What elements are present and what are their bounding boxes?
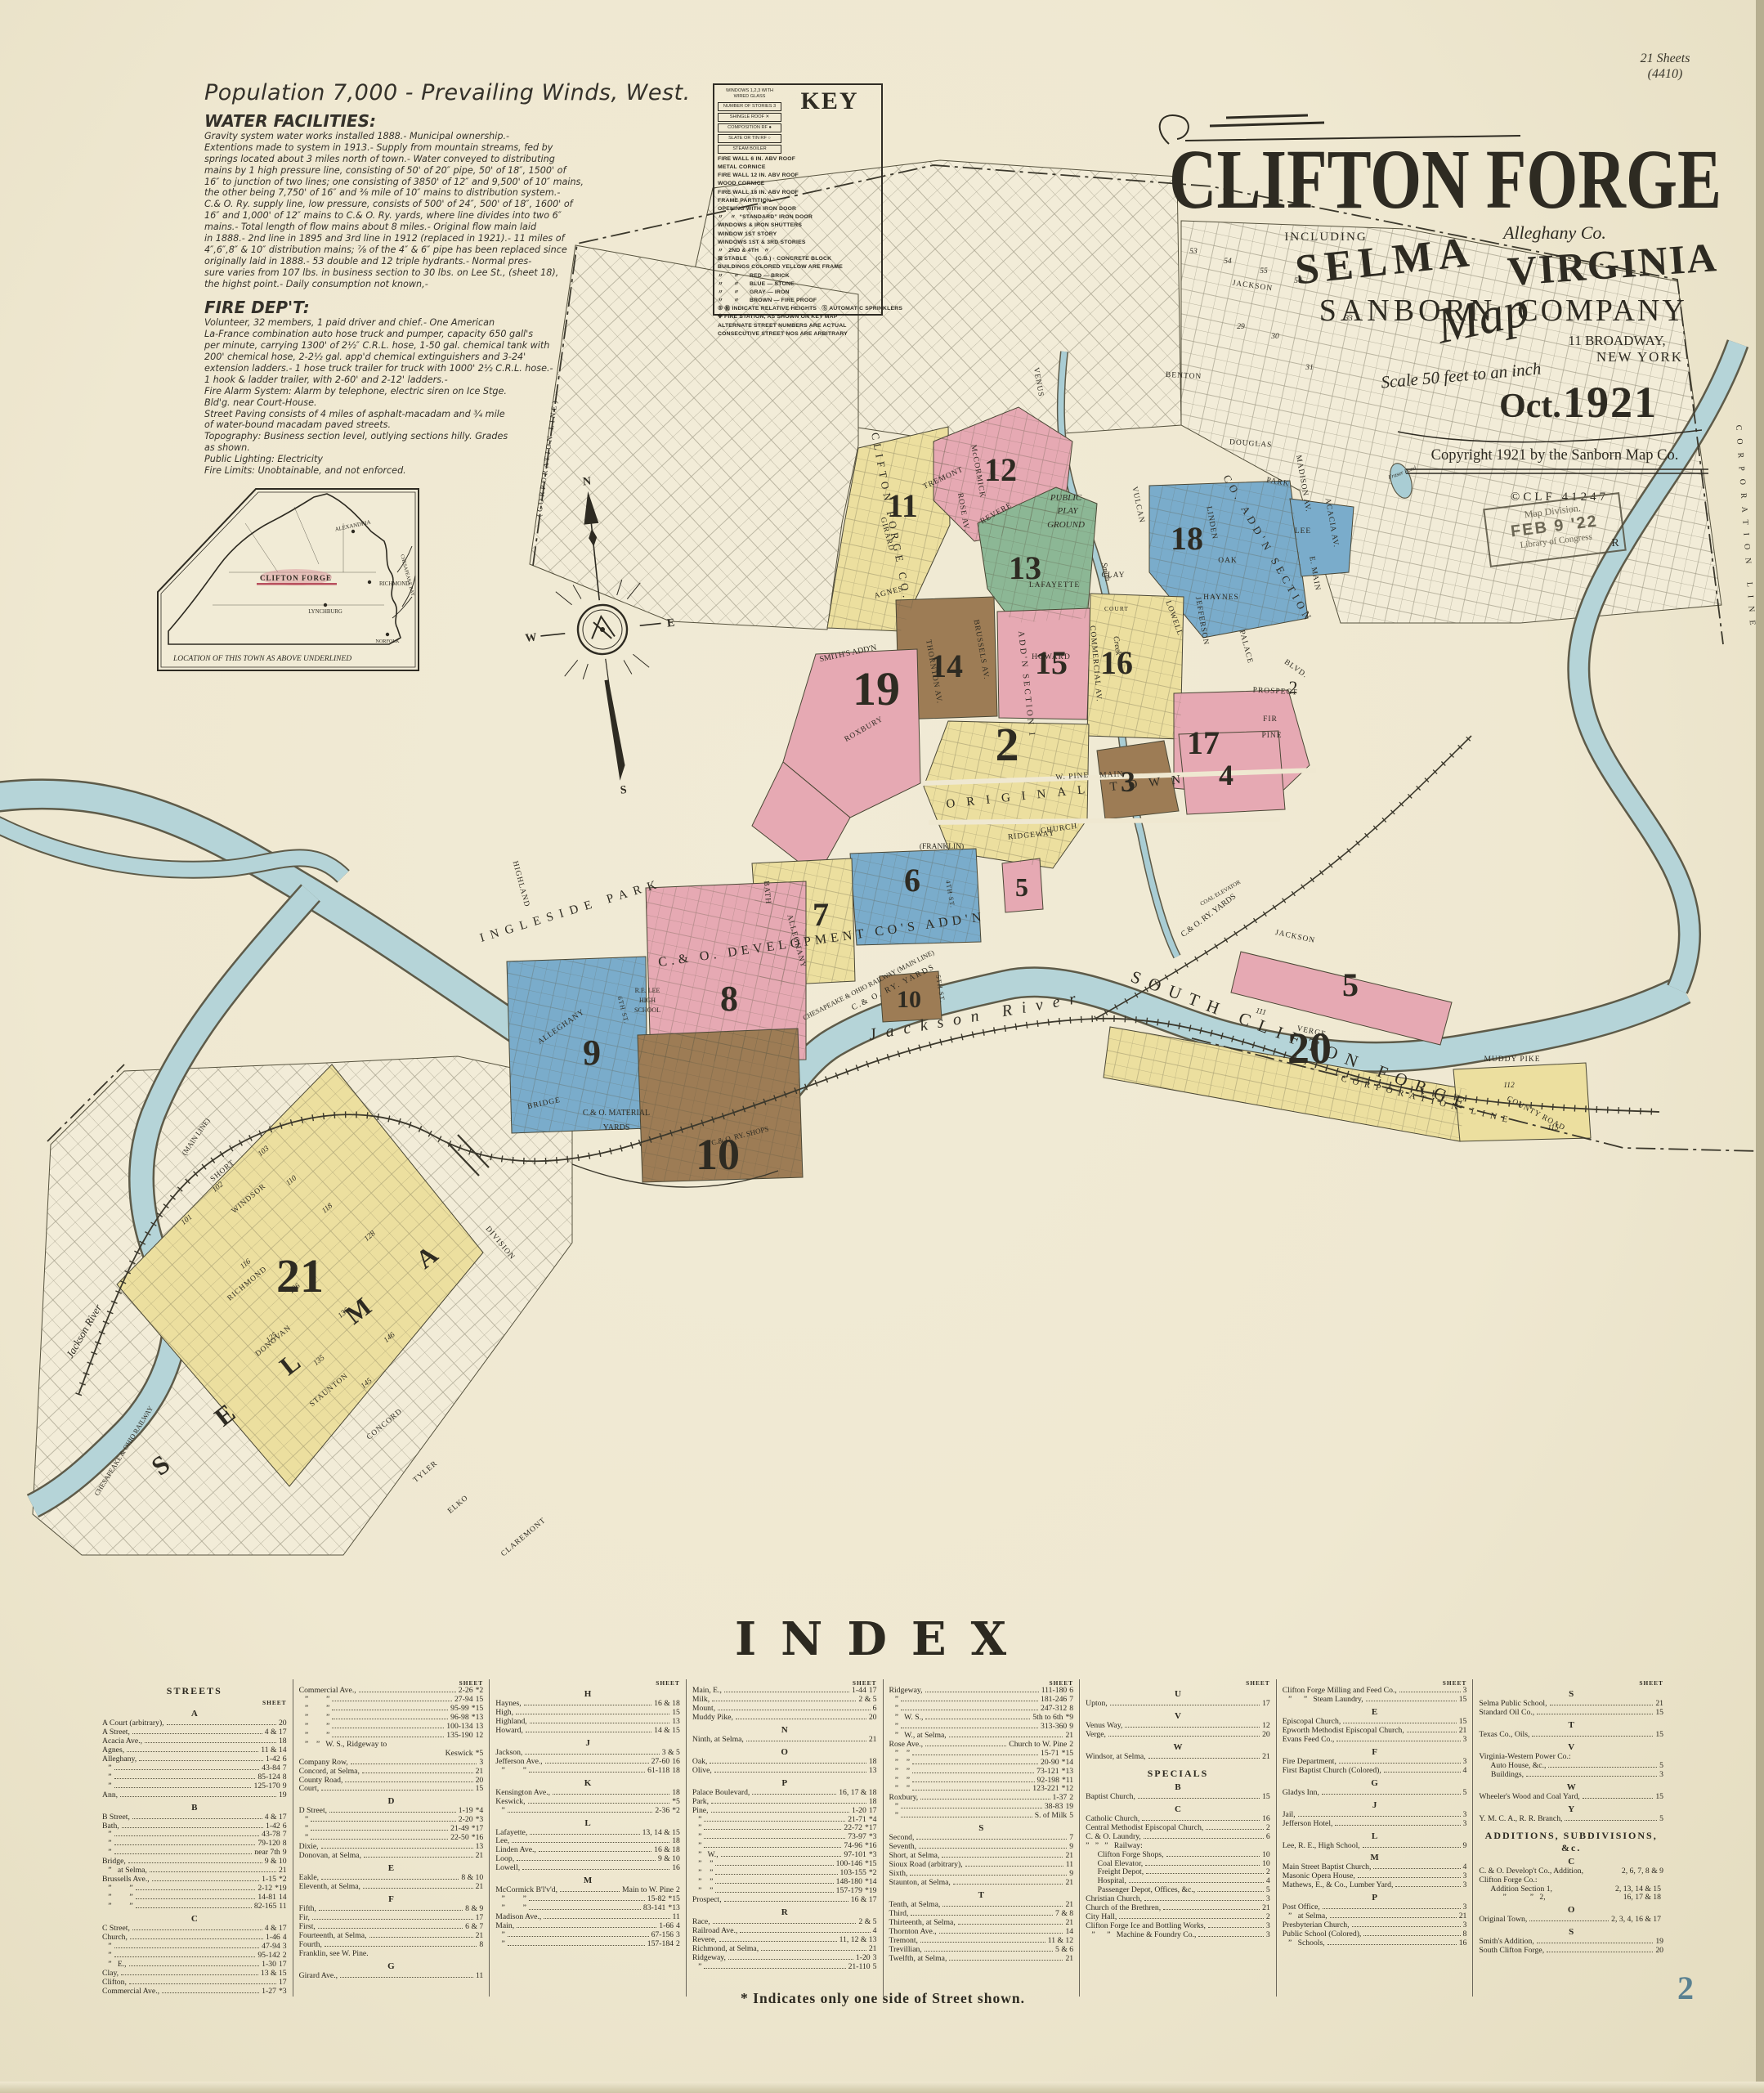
fire-dept-heading: FIRE DEP'T: — [204, 298, 705, 317]
index-entry: Haynes,16 & 18 — [495, 1700, 680, 1709]
index-entry: Donovan, at Selma,21 — [299, 1852, 484, 1861]
publisher-company: COMPANY — [1517, 294, 1687, 328]
index-entry: Palace Boulevard,16, 17 & 18 — [692, 1789, 877, 1798]
index-entry: Pine,1-2017 — [692, 1807, 877, 1816]
key-side-labels: WINDOWS 1,2,3 WITH WIRED GLASS NUMBER OF… — [718, 87, 781, 155]
district-number: 2 — [996, 718, 1019, 771]
map-title-city: CLIFTON FORGE — [1169, 132, 1721, 226]
index-entry: Park,18 — [692, 1798, 877, 1807]
index-entry: ” ”82-16511 — [102, 1903, 287, 1911]
compass-w-label: W — [525, 631, 537, 644]
index-entry: Fourteenth, at Selma,21 — [299, 1932, 484, 1941]
sheet-page-number: 2 — [1677, 1969, 1694, 2007]
index-column-4: SHEETMain, E.,1-4417Milk,2 & 5Mount,6Mud… — [686, 1679, 883, 1997]
compass-e-label: E — [666, 617, 675, 630]
area-label: R.E. LEE — [635, 987, 660, 994]
scan-edge-right — [1756, 0, 1764, 2093]
index-entry: Staunton, at Selma,21 — [889, 1879, 1074, 1888]
index-column-8: SHEETSSelma Public School,21Standard Oil… — [1472, 1679, 1669, 1997]
index-entry: ”95-1422 — [102, 1952, 287, 1961]
index-entry: C. & O. Laundry,6 — [1086, 1833, 1270, 1842]
key-side-label: STEAM BOILER — [718, 145, 781, 154]
index-entry: Evans Feed Co.,3 — [1283, 1736, 1467, 1745]
index-column-5: SHEETRidgeway,111-1806 ”181-2467 ”247-31… — [883, 1679, 1080, 1997]
sheets-count-note: 21 Sheets (4410) — [1596, 51, 1735, 82]
index-entry: Fir,17 — [299, 1914, 484, 1923]
index-entry: ” ”15-71*15 — [889, 1750, 1074, 1759]
district-number: 5 — [1015, 872, 1028, 902]
index-entry: Jefferson Hotel,3 — [1283, 1820, 1467, 1829]
key-lines: FIRE WALL 6 IN. ABV ROOFMETAL CORNICEFIR… — [718, 155, 878, 338]
index-entry: Sioux Road (arbitrary),11 — [889, 1861, 1074, 1870]
index-entry: ”125-1709 — [102, 1782, 287, 1791]
block-number: 112 — [1503, 1082, 1515, 1090]
key-topnote: WINDOWS 1,2,3 WITH WIRED GLASS — [718, 87, 781, 101]
area-label: SCHOOL — [634, 1006, 660, 1014]
index-entry: Alleghany,1-426 — [102, 1755, 287, 1764]
index-entry: Muddy Pike,20 — [692, 1714, 877, 1723]
index-entry: Howard,14 & 15 — [495, 1727, 680, 1736]
street-label: HIGHLAND — [511, 860, 531, 908]
street-label: HOWARD — [1032, 653, 1071, 661]
index-entry: ”S. of Milk5 — [889, 1812, 1074, 1821]
key-side-label: COMPOSITION RF ● — [718, 123, 781, 132]
index-entry: Loop,9 & 10 — [495, 1855, 680, 1864]
inset-city-label: NORFOLK — [375, 639, 400, 644]
scan-edge-bottom — [0, 2082, 1764, 2093]
title-county: Alleghany Co. — [1502, 222, 1606, 243]
index-entry: Acacia Ave.,18 — [102, 1737, 287, 1746]
index-column-3: SHEETHHaynes,16 & 18High,15Highland,13Ho… — [489, 1679, 686, 1997]
index-entry: Venus Way,12 — [1086, 1722, 1270, 1731]
index-entry: Verge,20 — [1086, 1731, 1270, 1740]
map-key-legend: WINDOWS 1,2,3 WITH WIRED GLASS NUMBER OF… — [713, 83, 883, 316]
atlas-number: (4410) — [1596, 66, 1735, 82]
index-entry: Texas Co., Oils,15 — [1479, 1731, 1663, 1740]
fire-dept-text: Volunteer, 32 members, 1 paid driver and… — [204, 317, 705, 476]
index-entry: South Clifton Forge,20 — [1479, 1947, 1663, 1956]
area-label: C.& O. MATERIAL — [583, 1109, 650, 1118]
index-entry: Wheeler's Wood and Coal Yard,15 — [1479, 1793, 1663, 1802]
index-entry: Franklin, see W. Pine. — [299, 1950, 484, 1959]
title-block: CLIFTON FORGE INCLUDING SELMA Alleghany … — [1136, 47, 1764, 587]
index-entry: ”22-50*16 — [299, 1834, 484, 1843]
street-label: ELKO — [446, 1494, 470, 1516]
district-number: 9 — [583, 1033, 601, 1073]
water-facilities-text: Gravity system water works installed 188… — [204, 131, 705, 289]
index-entry: Lowell,16 — [495, 1864, 680, 1873]
index-entry: Company Row,3 — [299, 1759, 484, 1768]
index-entry: Prospect,16 & 17 — [692, 1896, 877, 1905]
inset-city-label: RICHMOND — [379, 581, 410, 587]
index-entry: Standard Oil Co.,15 — [1479, 1709, 1663, 1718]
title-state: VIRGINIA — [1506, 234, 1719, 294]
map-date-month: Oct. — [1499, 388, 1561, 425]
inset-town-label: CLIFTON FORGE — [260, 574, 332, 582]
street-label: TYLER — [412, 1459, 440, 1485]
index-entry: B Street,4 & 17 — [102, 1813, 287, 1822]
index-entry: Gladys Inn,5 — [1283, 1789, 1467, 1798]
publisher-address-2: NEW YORK — [1596, 349, 1683, 365]
index-columns: STREETSSHEETAA Court (arbitrary),20A Str… — [96, 1679, 1669, 1997]
district-number: 17 — [1187, 724, 1220, 761]
index-entry: Highland,13 — [495, 1718, 680, 1727]
district-number: 15 — [1035, 644, 1068, 681]
street-label: JACKSON — [1274, 929, 1316, 945]
index-entry: D Street,1-19*4 — [299, 1807, 484, 1816]
street-label: MUDDY PIKE — [1484, 1055, 1540, 1064]
water-facilities-heading: WATER FACILITIES: — [204, 111, 705, 131]
index-entry: Lee, R. E., High School,9 — [1283, 1842, 1467, 1851]
area-label: (FRANKLIN) — [920, 842, 964, 851]
area-label: INGLESIDE PARK — [478, 877, 664, 945]
index-column-7: SHEETClifton Forge Milling and Feed Co.,… — [1276, 1679, 1473, 1997]
index-entry: Concord, at Selma,21 — [299, 1768, 484, 1777]
population-line: Population 7,000 - Prevailing Winds, Wes… — [204, 80, 705, 105]
index-entry: Buildings,3 — [1479, 1771, 1663, 1780]
index-entry: Tenth, at Selma,21 — [889, 1901, 1074, 1910]
index-entry: ”near 7th9 — [102, 1849, 287, 1858]
index-column-1: STREETSSHEETAA Court (arbitrary),20A Str… — [96, 1679, 293, 1997]
key-title: KEY — [781, 87, 878, 115]
district-number: 6 — [904, 862, 920, 899]
index-entry: Twelfth, at Selma,21 — [889, 1955, 1074, 1964]
index-footnote: * Indicates only one side of Street show… — [96, 1990, 1669, 2007]
index-entry: Kensington Ave.,18 — [495, 1789, 680, 1798]
area-label: HIGH — [639, 997, 656, 1004]
district-number: 8 — [720, 979, 738, 1019]
street-label: CLAY — [1102, 571, 1126, 580]
index-entry: Oak,18 — [692, 1758, 877, 1767]
index-entry: Baptist Church,15 — [1086, 1793, 1270, 1802]
street-label: PINE — [1261, 732, 1282, 740]
index-title: INDEX — [96, 1612, 1669, 1666]
index-entry: Olive,13 — [692, 1767, 877, 1776]
district-number: 7 — [813, 896, 829, 933]
inset-city-label: LYNCHBURG — [308, 609, 343, 615]
index-entry: C Street,4 & 17 — [102, 1925, 287, 1934]
area-label: PUBLIC — [1050, 493, 1082, 503]
index-entry: Linden Ave.,16 & 18 — [495, 1846, 680, 1855]
index-entry: Keswick*5 — [299, 1750, 484, 1759]
street-index: INDEX STREETSSHEETAA Court (arbitrary),2… — [96, 1612, 1669, 1997]
index-entry: Clifton Forge Co.: — [1479, 1876, 1663, 1885]
index-entry: Keswick,*5 — [495, 1798, 680, 1807]
index-entry: Milk,2 & 5 — [692, 1696, 877, 1705]
index-entry: ” Schools,16 — [1283, 1939, 1467, 1948]
key-side-label: NUMBER OF STORIES 3 — [718, 102, 781, 111]
area-label: YARDS — [603, 1123, 630, 1132]
street-label: MAIN — [1099, 770, 1124, 780]
index-entry: ” ”61-11818 — [495, 1767, 680, 1776]
compass-s-label: S — [620, 784, 628, 797]
index-column-6: SHEETUUpton,17VVenus Way,12Verge,20WWind… — [1079, 1679, 1276, 1997]
index-entry: C. & O. Develop't Co., Addition,2, 6, 7,… — [1479, 1867, 1663, 1876]
copyright-line: Copyright 1921 by the Sanborn Map Co. — [1431, 447, 1679, 464]
index-entry: Second,7 — [889, 1834, 1074, 1843]
index-entry: ” ” 2,16, 17 & 18 — [1479, 1894, 1663, 1903]
index-entry: ”21-1105 — [692, 1963, 877, 1972]
index-entry: Jail,3 — [1283, 1811, 1467, 1820]
street-label: FIR — [1263, 715, 1278, 724]
index-entry: Church,1-464 — [102, 1934, 287, 1943]
inset-caption: LOCATION OF THIS TOWN AS ABOVE UNDERLINE… — [172, 655, 351, 663]
index-entry: Clay,13 & 15 — [102, 1970, 287, 1979]
index-entry: Upton,17 — [1086, 1700, 1270, 1709]
index-entry: Madison Ave.,11 — [495, 1913, 680, 1922]
compass-n-label: N — [582, 476, 592, 489]
district-number: 19 — [853, 662, 900, 715]
index-entry: ”157-1842 — [495, 1940, 680, 1949]
district-number: 10 — [897, 986, 921, 1013]
index-entry: Eleventh, at Selma,21 — [299, 1883, 484, 1892]
street-label: CLAREMONT — [499, 1517, 548, 1558]
sanborn-map-sheet: 11 12 13 18 14 15 16 17 19 2 3 4 5 6 7 8… — [0, 0, 1764, 2093]
index-entry: Fifth,8 & 9 — [299, 1905, 484, 1914]
index-entry: Main, E.,1-4417 — [692, 1687, 877, 1696]
index-entry: Original Town,2, 3, 4, 16 & 17 — [1479, 1916, 1663, 1925]
index-column-2: SHEETCommercial Ave.,2-26*2 ” ”27-9415 ”… — [293, 1679, 490, 1997]
street-label: LAFAYETTE — [1029, 581, 1080, 589]
virginia-inset-map: CLIFTON FORGE ALEXANDRIA RICHMOND LYNCHB… — [158, 489, 419, 670]
index-entry: Mathews, E., & Co., Lumber Yard,3 — [1283, 1881, 1467, 1890]
map-date-year: 1921 — [1563, 378, 1658, 427]
publisher-address-1: 11 BROADWAY, — [1568, 333, 1665, 348]
key-side-label: SHINGLE ROOF ✕ — [718, 113, 781, 122]
key-side-label: SLATE OR TIN RF ○ — [718, 134, 781, 143]
index-entry: Windsor, at Selma,21 — [1086, 1753, 1270, 1762]
index-entry: ” ” ” Railway: — [1086, 1842, 1270, 1851]
sheets-count: 21 Sheets — [1596, 51, 1735, 66]
street-label: PALACE — [1238, 630, 1255, 665]
index-entry: First Baptist Church (Colored),4 — [1283, 1767, 1467, 1776]
area-label: PLAY — [1056, 506, 1079, 516]
index-entry: Court,15 — [299, 1785, 484, 1794]
index-entry: Clifton Forge Shops,10 — [1086, 1851, 1270, 1860]
area-label: GROUND — [1047, 520, 1085, 530]
district-number: 21 — [276, 1249, 324, 1302]
index-entry: Ninth, at Selma,21 — [692, 1736, 877, 1745]
index-entry: ” ” Machine & Foundry Co.,3 — [1086, 1931, 1270, 1940]
index-entry: ”2-36*2 — [495, 1807, 680, 1816]
index-entry: Ann,19 — [102, 1791, 287, 1800]
index-entry: ” ” Steam Laundry,15 — [1283, 1696, 1467, 1705]
district-number: 4 — [1219, 759, 1233, 791]
district-number: 12 — [984, 451, 1017, 488]
index-entry: ” E.,1-3017 — [102, 1961, 287, 1970]
district-number: 5 — [1342, 966, 1359, 1003]
index-entry: ” ”20-90*14 — [889, 1759, 1074, 1768]
street-label: HAYNES — [1203, 594, 1239, 602]
index-entry: Girard Ave.,11 — [299, 1972, 484, 1981]
index-entry: ” ”73-121*13 — [889, 1768, 1074, 1777]
block-number: 115 — [1547, 1124, 1559, 1132]
index-entry: County Road,20 — [299, 1777, 484, 1786]
statistics-notes: Population 7,000 - Prevailing Winds, Wes… — [204, 80, 705, 477]
index-entry: Y. M. C. A., R. R. Branch,5 — [1479, 1815, 1663, 1824]
index-entry: Bath,1-426 — [102, 1822, 287, 1831]
street-label: COURT — [1104, 605, 1129, 612]
index-entry: Lafayette,13, 14 & 15 — [495, 1829, 680, 1838]
